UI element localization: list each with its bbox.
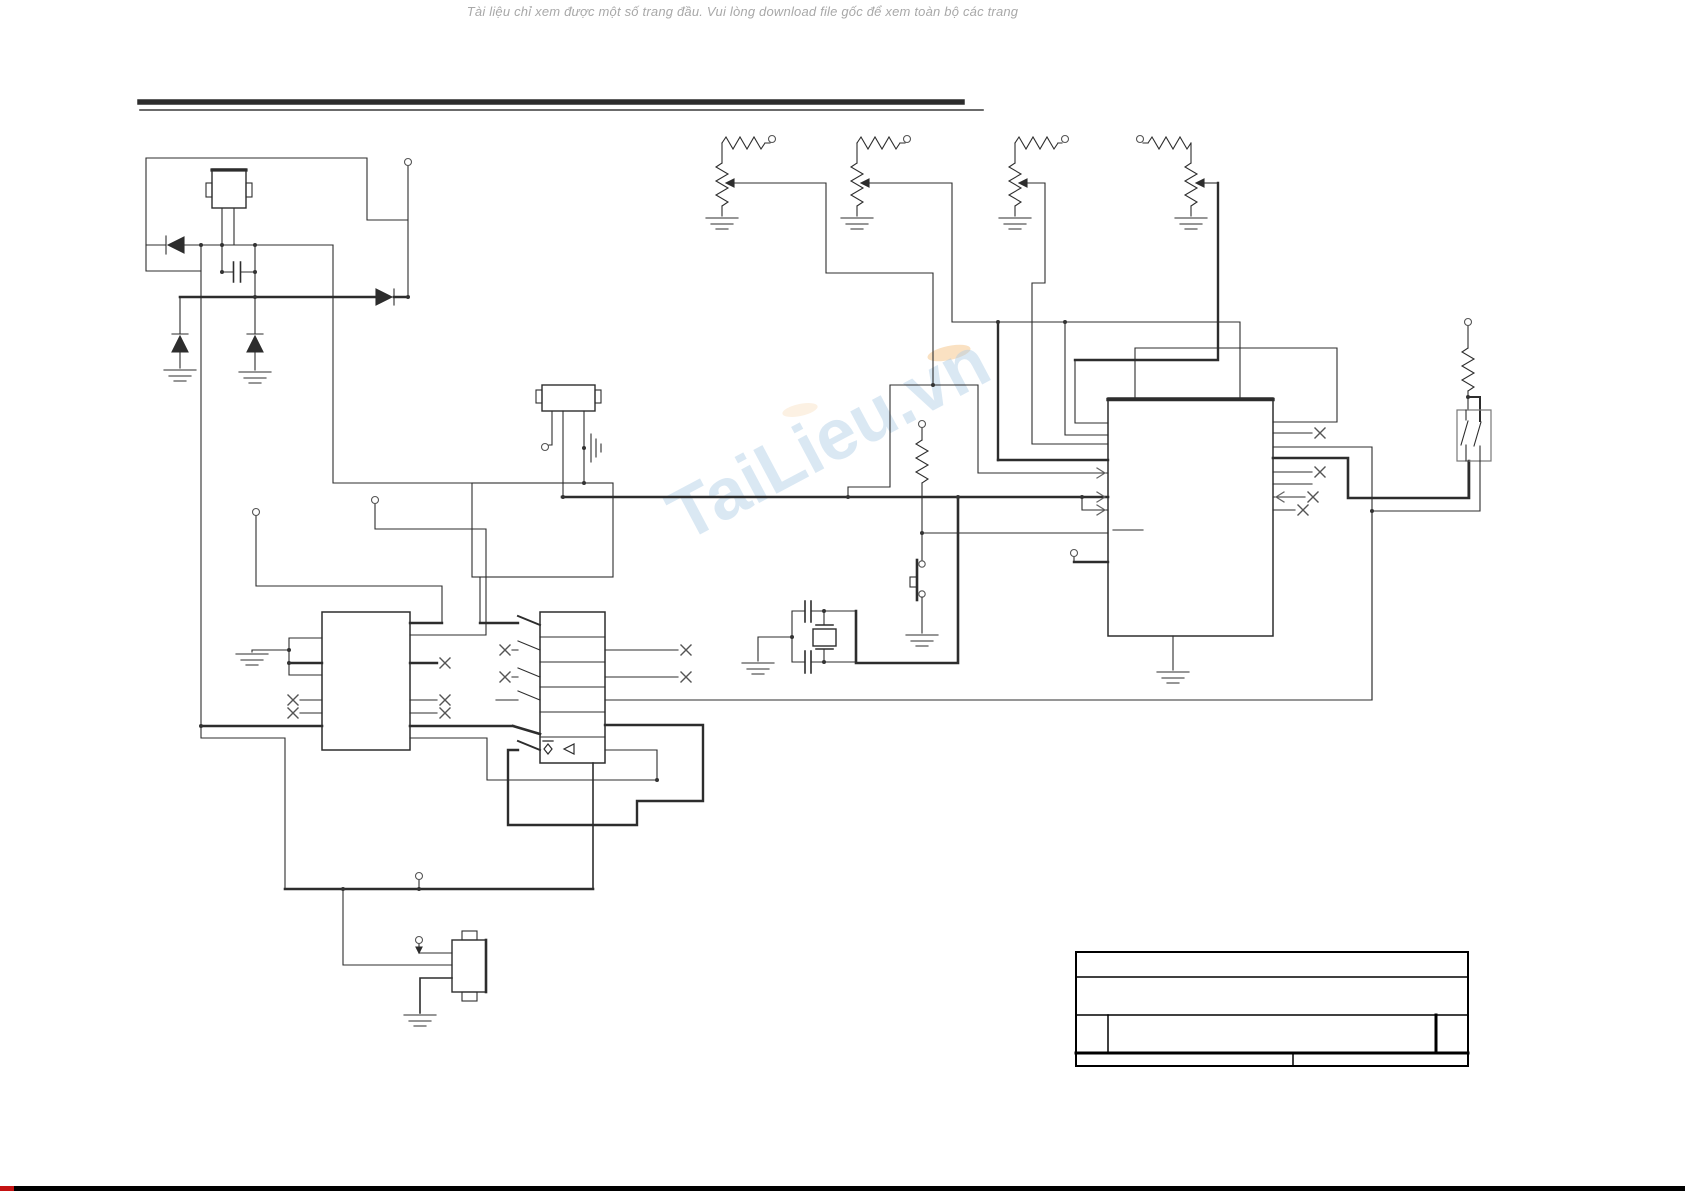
potentiometer-1 xyxy=(706,137,933,385)
title-block xyxy=(1076,952,1468,1066)
crystal-oscillator xyxy=(742,497,958,674)
document-page: Tài liệu chỉ xem được một số trang đầu. … xyxy=(0,0,1685,1191)
diode-clamp-1 xyxy=(164,297,196,381)
title-rule xyxy=(140,102,983,110)
terminal-circles xyxy=(253,136,1472,944)
pushbutton xyxy=(906,560,938,646)
dip-switch-assembly xyxy=(1372,326,1491,700)
main-ic xyxy=(1074,348,1469,700)
diode-left xyxy=(166,236,184,254)
ceramic-resonator xyxy=(536,385,601,497)
footer-progress-segment xyxy=(0,1186,14,1191)
power-jack xyxy=(452,931,486,1001)
diode-clamp-2 xyxy=(239,297,271,383)
page-footer-bar xyxy=(0,1186,1685,1191)
ground-rotated xyxy=(591,434,601,462)
watermark: TaiLieu.vn xyxy=(655,321,1002,556)
switch-blades xyxy=(1461,410,1481,461)
transformer xyxy=(206,169,252,272)
route-box xyxy=(472,483,613,623)
diode-series xyxy=(376,289,408,305)
schematic-canvas: TaiLieu.vn xyxy=(0,0,1685,1191)
potentiometer-3 xyxy=(999,137,1108,444)
pin-arrow-icons xyxy=(1097,468,1284,515)
junction-dots xyxy=(199,243,1470,891)
power-supply-section xyxy=(146,158,472,889)
filter-capacitor xyxy=(222,262,255,282)
multi-pin-connector xyxy=(480,612,1372,889)
power-jack-section xyxy=(285,880,593,1026)
potentiometer-4 xyxy=(1075,137,1218,423)
connector-polarity-marks xyxy=(543,741,574,754)
watermark-text: TaiLieu.vn xyxy=(655,321,1002,556)
driver-ic xyxy=(201,504,657,780)
